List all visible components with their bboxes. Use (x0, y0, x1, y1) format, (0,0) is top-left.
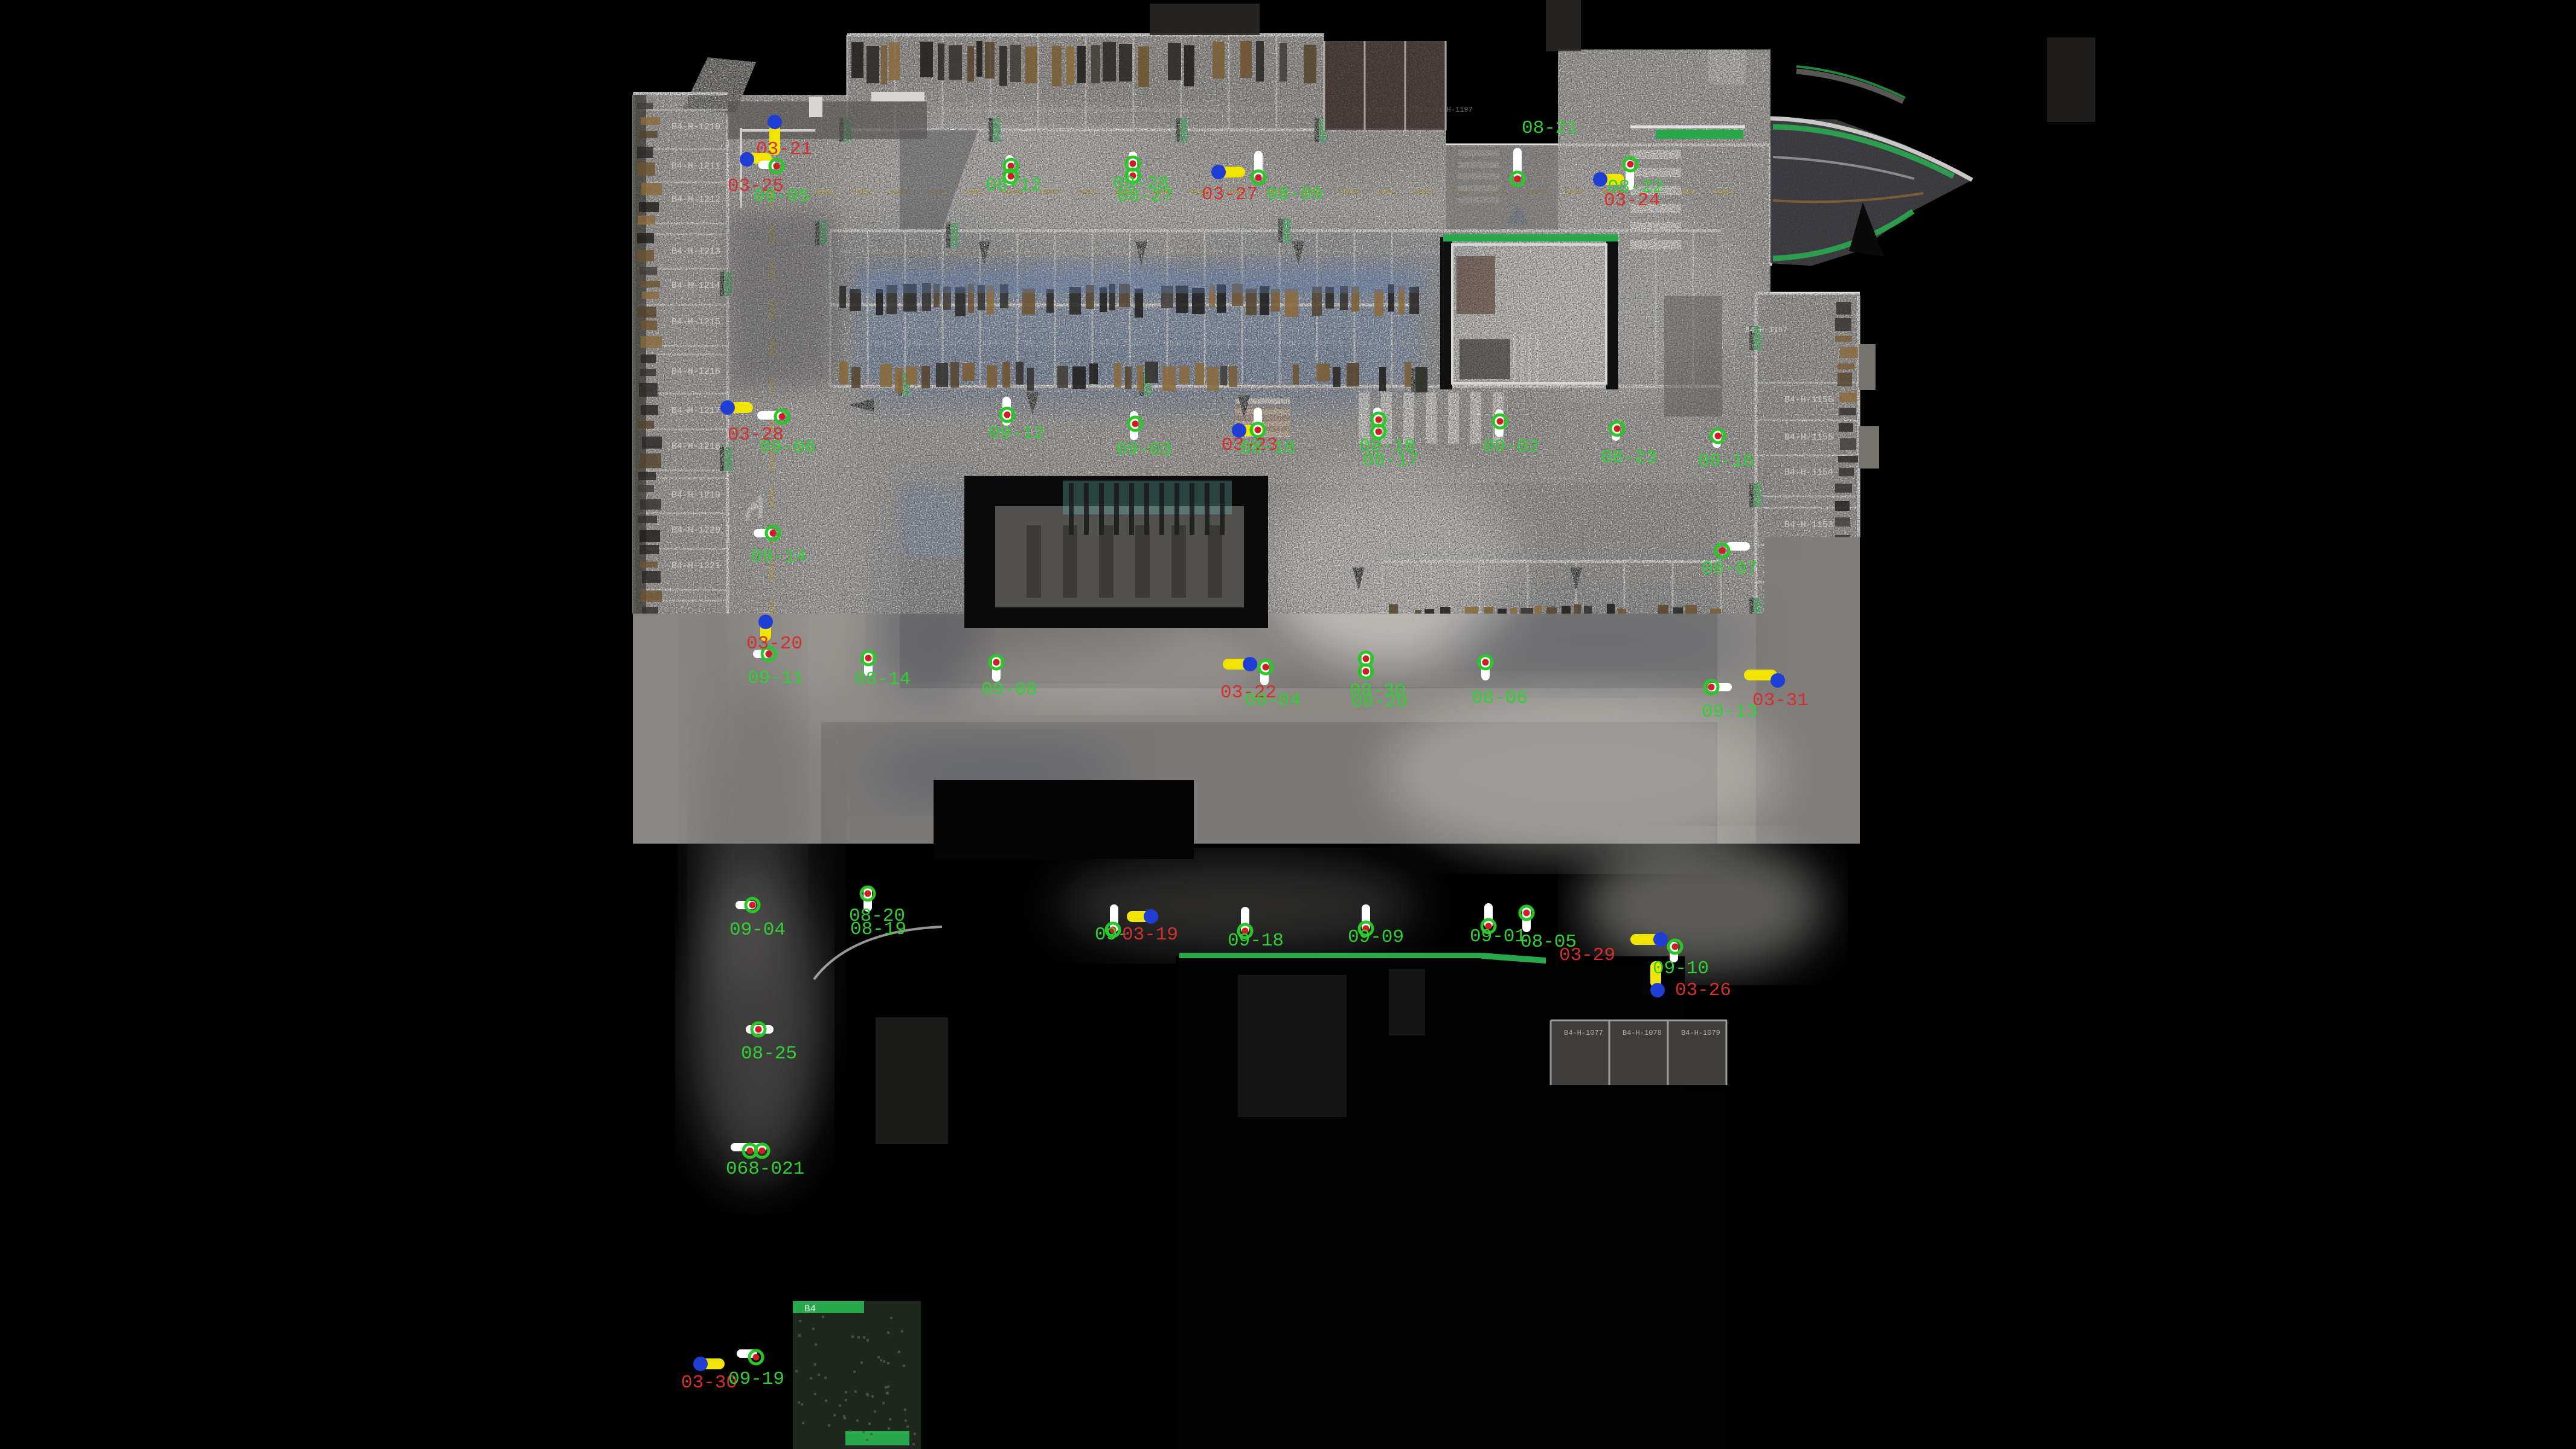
svg-text:068-021: 068-021 (726, 1159, 804, 1180)
svg-text:B4-H-1236: B4-H-1236 (671, 1182, 720, 1192)
svg-text:B4-H-1067: B4-H-1067 (816, 1017, 865, 1028)
svg-text:B4-H-1066: B4-H-1066 (816, 1054, 865, 1064)
svg-text:08-16: 08-16 (1698, 451, 1754, 472)
svg-text:B4-H-1156: B4-H-1156 (1784, 395, 1833, 405)
svg-text:09-02: 09-02 (1483, 437, 1539, 458)
svg-text:09-05: 09-05 (754, 186, 810, 207)
svg-text:B4-H-1221: B4-H-1221 (671, 561, 720, 571)
svg-text:08-21: 08-21 (1522, 118, 1578, 139)
svg-text:08-17: 08-17 (1363, 450, 1419, 471)
svg-text:B4-H-1235: B4-H-1235 (671, 1141, 720, 1151)
svg-text:09-01: 09-01 (1470, 926, 1526, 947)
svg-text:B4-H-1212: B4-H-1212 (671, 194, 720, 205)
svg-text:09-09: 09-09 (1348, 927, 1404, 948)
svg-text:B4-H-1155: B4-H-1155 (1784, 432, 1833, 443)
svg-text:B4-H-1233: B4-H-1233 (671, 1057, 720, 1067)
svg-text:B4-H-1211: B4-H-1211 (671, 161, 720, 171)
svg-text:08-19: 08-19 (850, 919, 906, 940)
svg-text:08-14: 08-14 (854, 669, 911, 690)
svg-text:B4-H-1078: B4-H-1078 (1623, 1029, 1662, 1037)
svg-text:B4-H-1151: B4-H-1151 (1784, 594, 1833, 604)
svg-text:B4-H-1234: B4-H-1234 (671, 1105, 720, 1115)
svg-text:03-27: 03-27 (1202, 184, 1258, 205)
svg-text:09-08: 09-08 (981, 679, 1037, 700)
svg-text:B4-H-1232: B4-H-1232 (671, 1020, 720, 1030)
svg-text:B4-H-1215: B4-H-1215 (671, 317, 720, 327)
svg-text:B4-H-1223: B4-H-1223 (671, 645, 720, 655)
svg-text:08-27: 08-27 (1117, 186, 1173, 207)
svg-text:08-07: 08-07 (1702, 558, 1758, 580)
svg-text:B4-H-1230: B4-H-1230 (671, 932, 720, 942)
svg-text:03-19: 03-19 (1122, 924, 1178, 945)
svg-text:B4-H-1225: B4-H-1225 (671, 737, 720, 747)
svg-text:09-13: 09-13 (1702, 702, 1758, 723)
svg-text:B4-H-1213: B4-H-1213 (671, 246, 720, 257)
svg-text:B4-H-1237: B4-H-1237 (641, 1316, 690, 1326)
svg-text:B4-H-1152: B4-H-1152 (1784, 557, 1833, 568)
svg-text:08-20: 08-20 (1351, 691, 1408, 712)
svg-text:B4-H-1228: B4-H-1228 (671, 860, 720, 870)
svg-text:03-20: 03-20 (746, 633, 803, 654)
svg-text:B4-H-1121: B4-H-1121 (1784, 767, 1833, 778)
svg-text:03-31: 03-31 (1752, 690, 1809, 711)
svg-text:09-06: 09-06 (760, 437, 816, 458)
svg-text:B4-H-1239: B4-H-1239 (641, 1399, 690, 1410)
svg-text:09-19: 09-19 (728, 1369, 784, 1390)
svg-text:B4-H-1214: B4-H-1214 (671, 281, 720, 291)
svg-text:B4-H-1222: B4-H-1222 (671, 613, 720, 623)
svg-text:B4-H-1229: B4-H-1229 (671, 895, 720, 905)
svg-text:B4-H-1120: B4-H-1120 (1784, 804, 1833, 814)
svg-text:09-14: 09-14 (751, 546, 807, 568)
svg-text:B4-H-1238: B4-H-1238 (641, 1358, 690, 1369)
svg-text:B4-H-1124: B4-H-1124 (1784, 645, 1833, 655)
svg-text:B4-H-1119: B4-H-1119 (1784, 839, 1833, 849)
svg-text:B4-H-1219: B4-H-1219 (671, 490, 720, 501)
svg-text:B4-H-1154: B4-H-1154 (1784, 467, 1833, 478)
svg-text:03-26: 03-26 (1675, 980, 1731, 1001)
svg-text:B4-H-1224: B4-H-1224 (671, 685, 720, 695)
svg-text:B4-H-1065: B4-H-1065 (816, 1128, 865, 1138)
svg-text:B4-H-1226: B4-H-1226 (671, 770, 720, 781)
svg-text:B4-H-1079: B4-H-1079 (1681, 1029, 1720, 1037)
svg-text:08-09: 08-09 (1267, 184, 1323, 205)
svg-text:09-18: 09-18 (1228, 930, 1284, 952)
svg-text:B4-H-1063: B4-H-1063 (816, 1200, 865, 1211)
svg-text:B4-H-1217: B4-H-1217 (671, 406, 720, 416)
svg-text:08-23: 08-23 (1601, 447, 1657, 469)
svg-text:B4-H-1210: B4-H-1210 (671, 122, 720, 132)
svg-text:B4-H-1231: B4-H-1231 (671, 985, 720, 995)
svg-text:03-24: 03-24 (1604, 190, 1660, 211)
svg-text:08-25: 08-25 (741, 1043, 797, 1064)
svg-text:B4: B4 (804, 1303, 816, 1314)
svg-text:09-11: 09-11 (748, 668, 804, 689)
svg-text:09-03: 09-03 (1116, 440, 1172, 461)
svg-text:B4-H-1064: B4-H-1064 (816, 1164, 865, 1174)
svg-text:B4-H-1077: B4-H-1077 (1564, 1029, 1603, 1037)
svg-text:09-04: 09-04 (729, 920, 786, 941)
svg-text:B4-H-1157: B4-H-1157 (1745, 325, 1787, 334)
svg-text:B4-H-1153: B4-H-1153 (1784, 520, 1833, 530)
svg-text:B4-H-1227: B4-H-1227 (671, 807, 720, 817)
svg-text:08-04: 08-04 (1245, 690, 1301, 711)
svg-text:09-12: 09-12 (988, 423, 1045, 444)
svg-text:09-10: 09-10 (1653, 958, 1709, 979)
svg-text:B4-H-1218: B4-H-1218 (671, 441, 720, 452)
svg-text:03-29: 03-29 (1559, 945, 1615, 966)
svg-text:08-16: 08-16 (1240, 438, 1296, 459)
svg-text:08-06: 08-06 (1472, 688, 1528, 709)
svg-text:B4-H-1080: B4-H-1080 (1784, 964, 1833, 974)
svg-text:B4-H-1122: B4-H-1122 (1784, 717, 1833, 728)
svg-text:B4-H-1216: B4-H-1216 (671, 366, 720, 377)
svg-text:08-12: 08-12 (985, 175, 1042, 196)
svg-text:B4-H-1220: B4-H-1220 (671, 525, 720, 536)
